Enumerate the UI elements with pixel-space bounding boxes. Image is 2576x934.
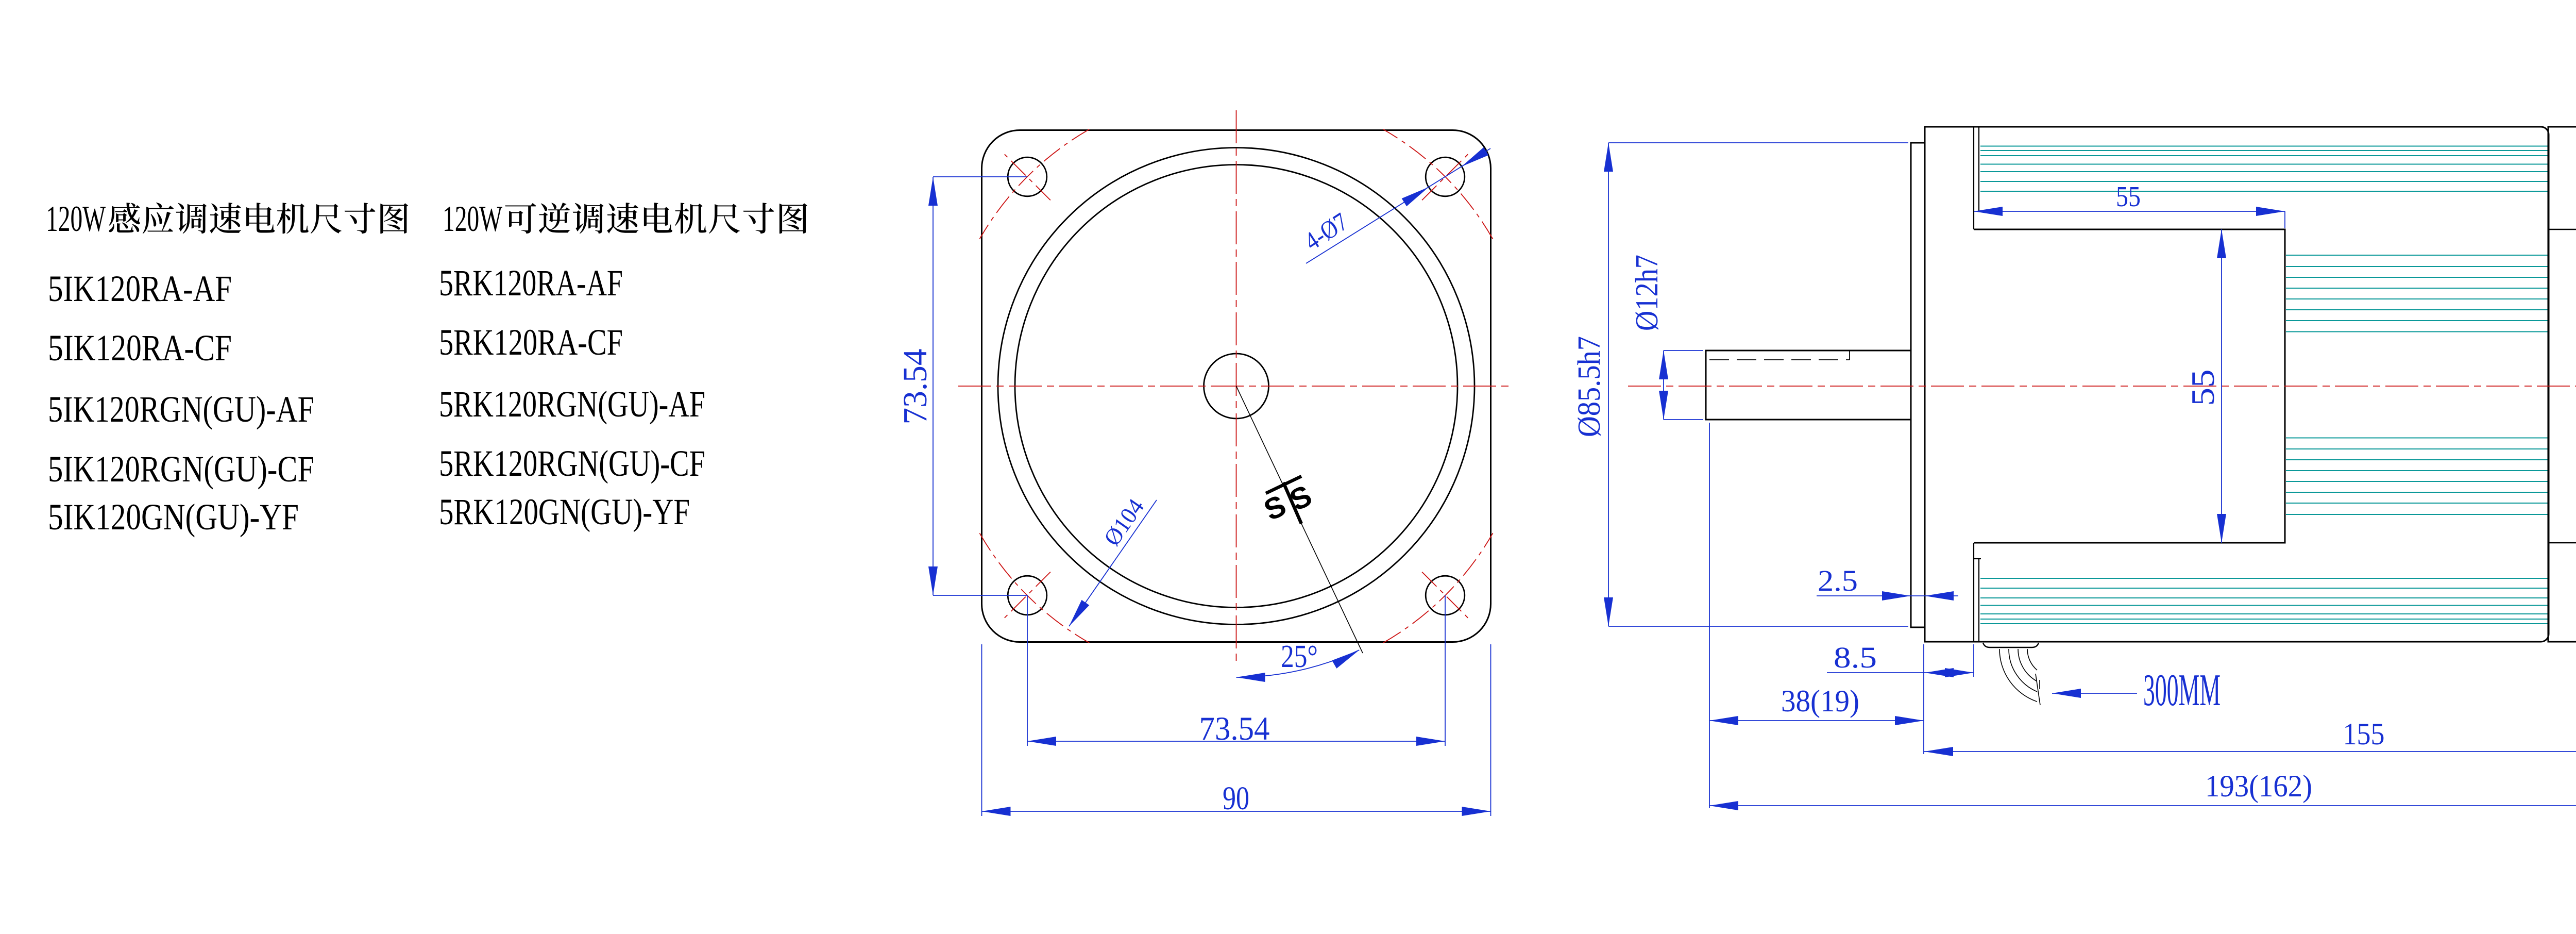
svg-text:300MM: 300MM: [2143, 665, 2221, 715]
svg-text:25°: 25°: [1281, 639, 1318, 674]
svg-text:5IK120RGN(GU)-AF: 5IK120RGN(GU)-AF: [48, 389, 314, 430]
svg-text:2.5: 2.5: [1818, 564, 1858, 597]
svg-text:73.54: 73.54: [1199, 710, 1270, 747]
svg-text:8.5: 8.5: [1834, 641, 1877, 674]
svg-text:120W: 120W: [443, 199, 502, 239]
svg-text:5RK120RA-AF: 5RK120RA-AF: [439, 262, 623, 304]
svg-text:120W: 120W: [46, 199, 106, 239]
svg-text:5IK120RGN(GU)-CF: 5IK120RGN(GU)-CF: [48, 448, 314, 490]
svg-text:90: 90: [1223, 780, 1249, 817]
svg-text:5IK120GN(GU)-YF: 5IK120GN(GU)-YF: [48, 496, 299, 538]
svg-text:5IK120RA-AF: 5IK120RA-AF: [48, 268, 232, 309]
svg-text:Ø85.5h7: Ø85.5h7: [1572, 336, 1607, 437]
svg-text:155: 155: [2343, 717, 2385, 751]
svg-text:73.54: 73.54: [896, 349, 934, 425]
svg-text:38(19): 38(19): [1781, 684, 1859, 718]
svg-text:55: 55: [2116, 181, 2141, 213]
svg-text:5RK120RGN(GU)-AF: 5RK120RGN(GU)-AF: [439, 383, 705, 425]
svg-text:55: 55: [2184, 370, 2221, 406]
svg-text:5RK120RGN(GU)-CF: 5RK120RGN(GU)-CF: [439, 443, 705, 484]
svg-text:5RK120RA-CF: 5RK120RA-CF: [439, 322, 623, 363]
svg-text:5IK120RA-CF: 5IK120RA-CF: [48, 327, 232, 369]
svg-text:Ø12h7: Ø12h7: [1630, 255, 1665, 331]
svg-text:193(162): 193(162): [2205, 769, 2312, 803]
svg-text:5RK120GN(GU)-YF: 5RK120GN(GU)-YF: [439, 491, 690, 532]
